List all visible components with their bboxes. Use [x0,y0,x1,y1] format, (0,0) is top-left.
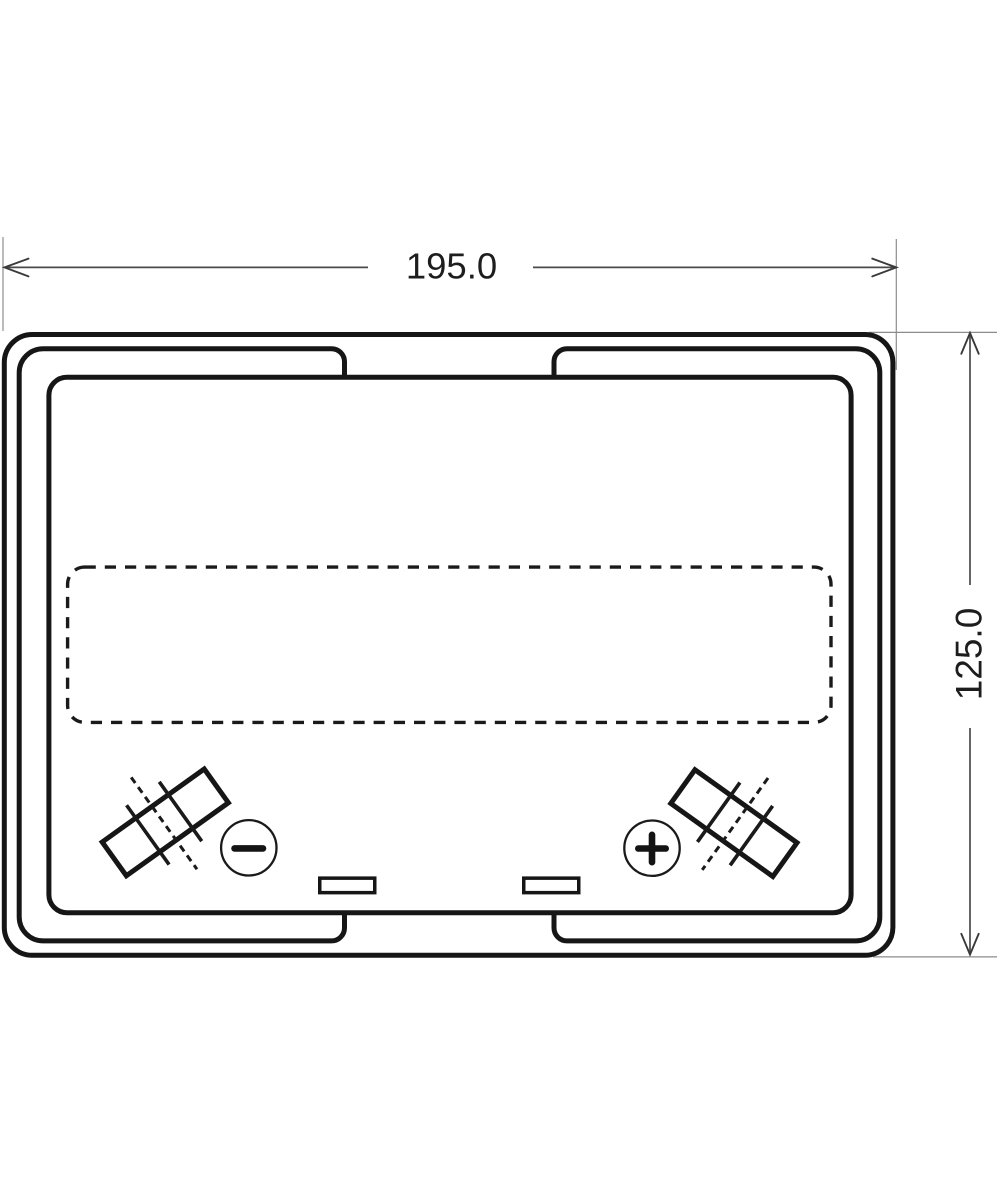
svg-text:125.0: 125.0 [949,608,990,701]
svg-text:195.0: 195.0 [406,246,497,287]
